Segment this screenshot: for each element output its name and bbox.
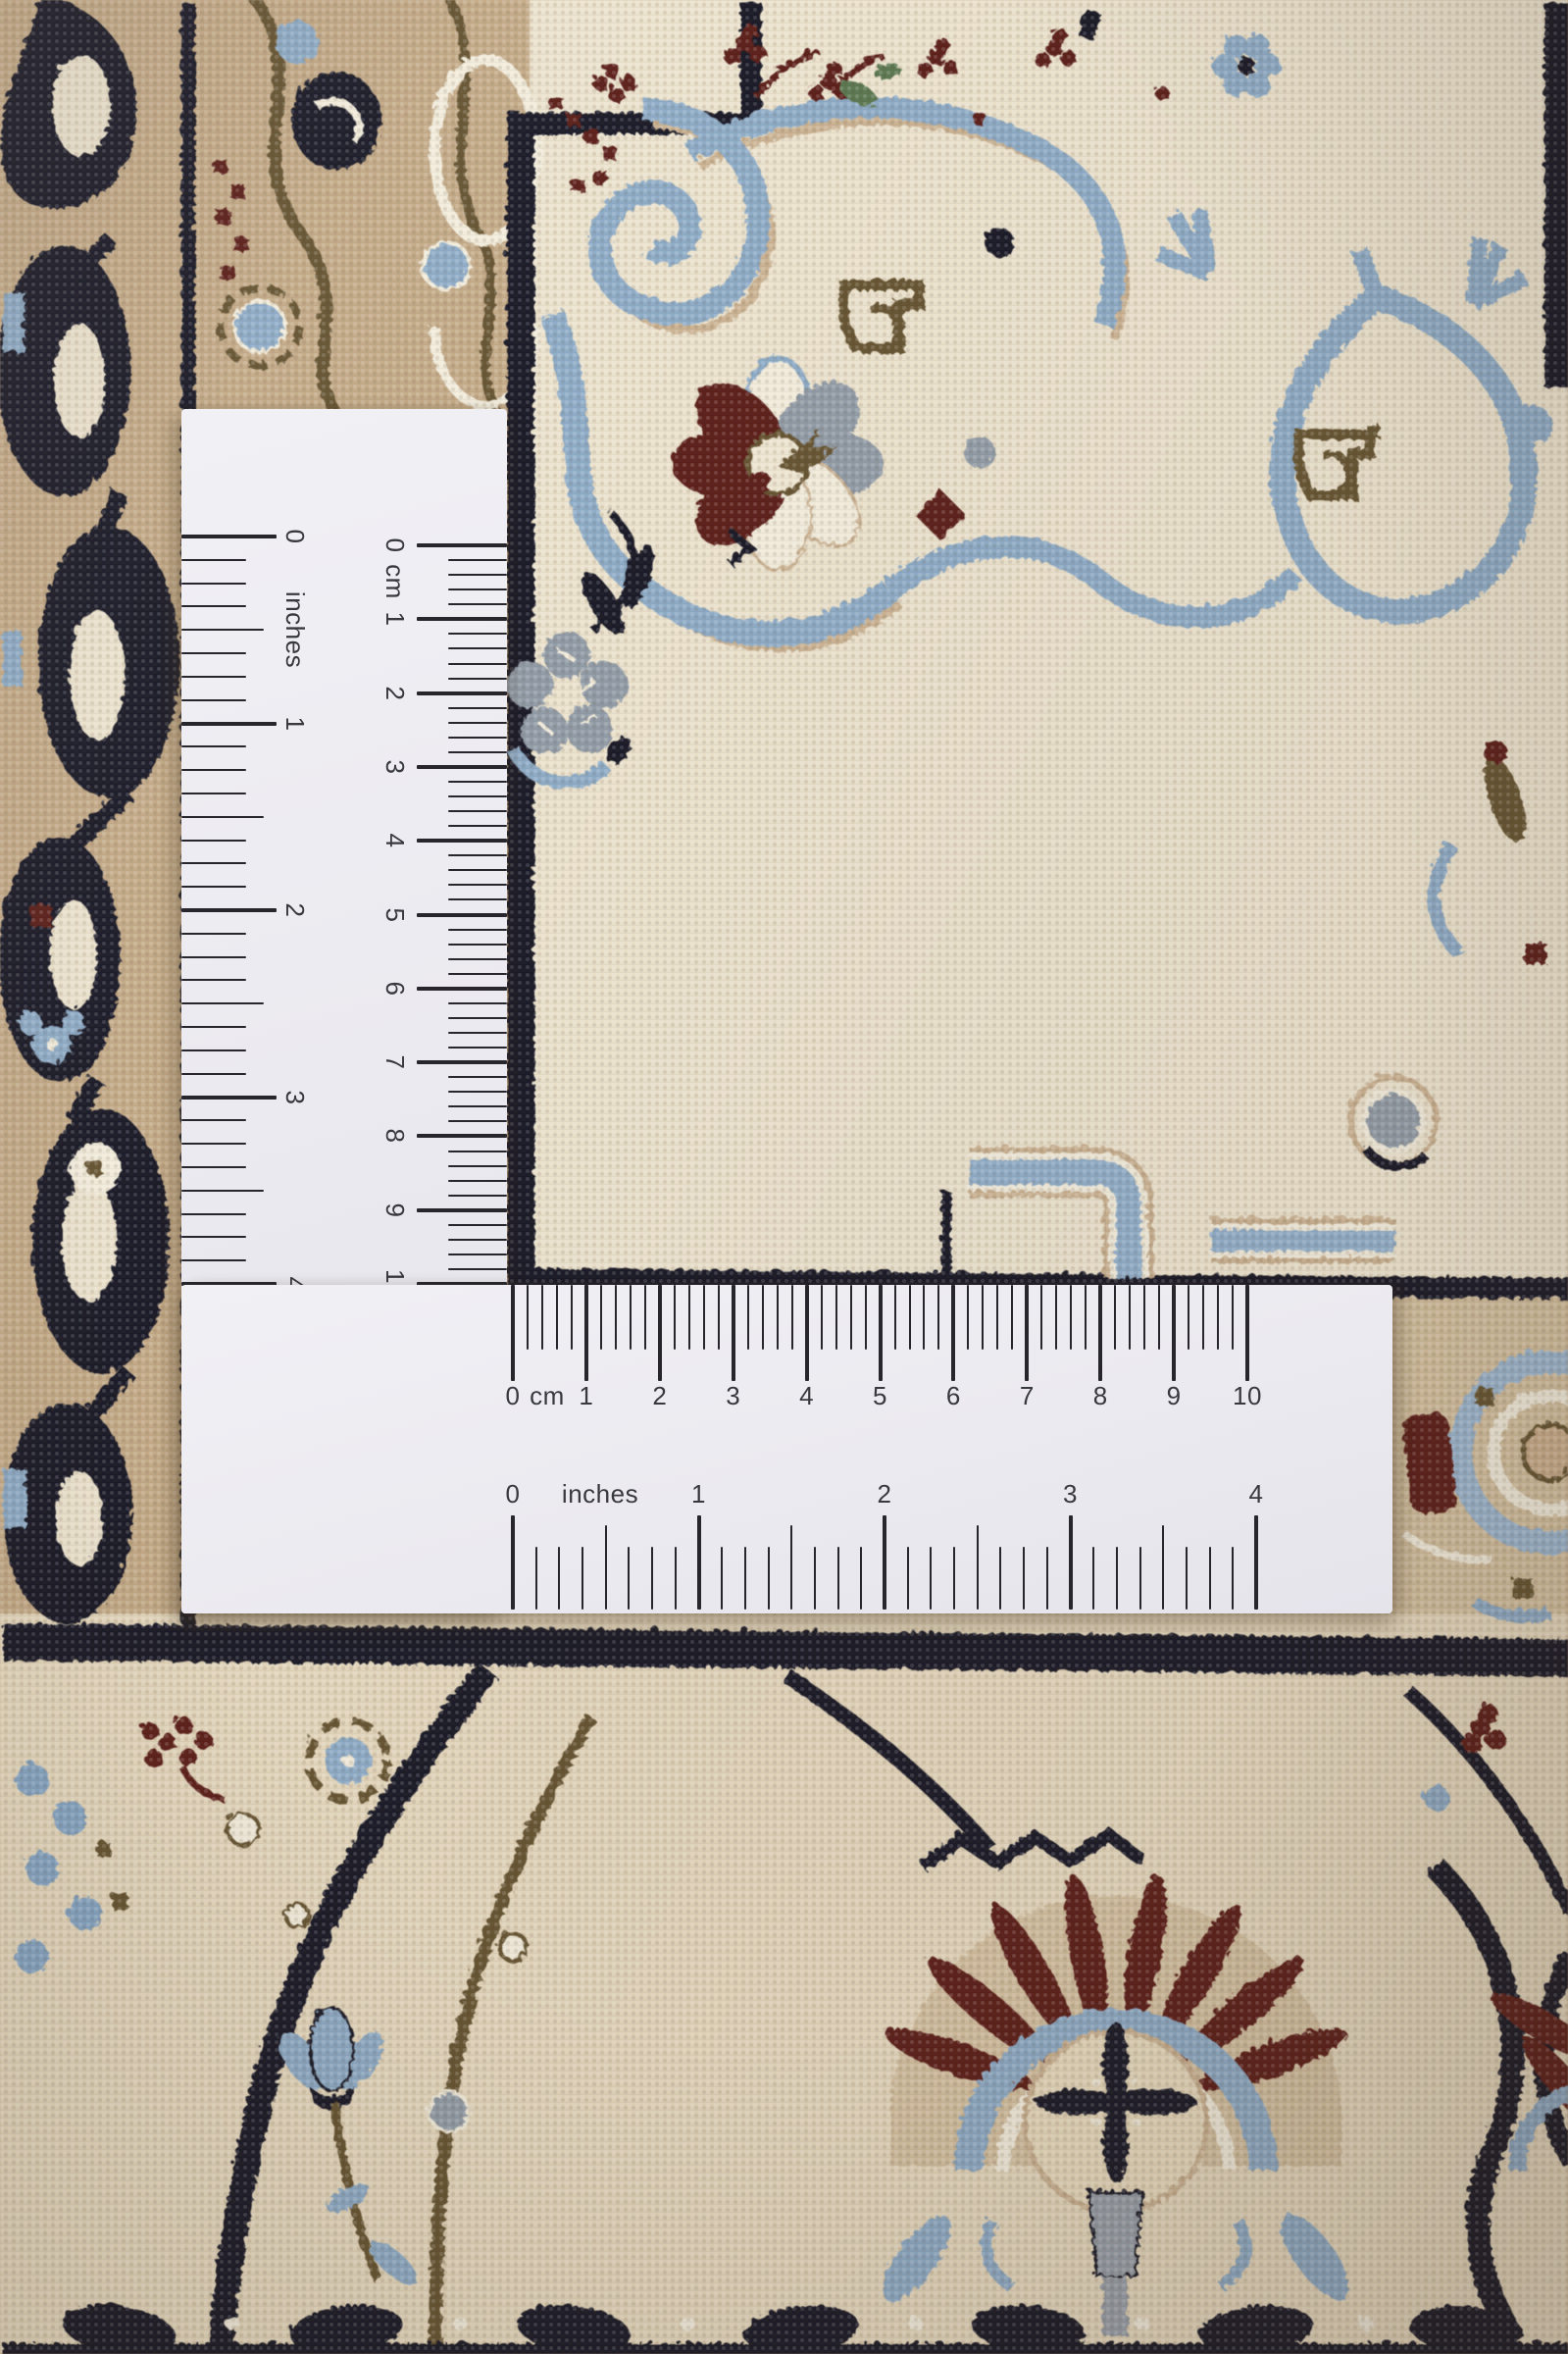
- ruler-number: 1: [691, 1481, 706, 1507]
- ruler-tick-minor: [448, 1224, 507, 1226]
- ruler-tick-minor: [1186, 1547, 1188, 1610]
- ruler-tick-minor: [448, 1180, 507, 1182]
- ruler-number: 0: [382, 538, 408, 553]
- ruler-number: 2: [382, 686, 408, 700]
- ruler-tick-major: [417, 987, 507, 991]
- ruler-tick-minor: [448, 854, 507, 856]
- ruler-horizontal-inches-scale: 01234inches: [181, 1285, 1392, 1613]
- ruler-tick-minor: [448, 707, 507, 709]
- ruler-tick-minor: [768, 1547, 770, 1610]
- ruler-tick-minor: [744, 1547, 746, 1610]
- ruler-tick-minor: [448, 1105, 507, 1107]
- ruler-number: 1: [382, 612, 408, 627]
- ruler-tick-major: [417, 913, 507, 917]
- ruler-tick-major: [697, 1515, 701, 1610]
- ruler-tick-minor: [1023, 1547, 1025, 1610]
- ruler-tick-minor: [977, 1525, 979, 1610]
- ruler-tick-minor: [448, 603, 507, 605]
- ruler-tick-major: [417, 1208, 507, 1212]
- ruler-number: 3: [1063, 1481, 1078, 1507]
- ruler-tick-minor: [448, 663, 507, 665]
- ruler-tick-minor: [651, 1547, 653, 1610]
- ruler-tick-minor: [448, 898, 507, 900]
- ruler-tick-major: [1254, 1515, 1258, 1610]
- ruler-tick-minor: [448, 1254, 507, 1255]
- ruler-tick-minor: [1092, 1547, 1094, 1610]
- ruler-tick-minor: [448, 1076, 507, 1078]
- ruler-tick-minor: [448, 944, 507, 946]
- ruler-tick-minor: [675, 1547, 677, 1610]
- ruler-tick-minor: [448, 1195, 507, 1197]
- ruler-tick-minor: [907, 1547, 909, 1610]
- ruler-tick-minor: [790, 1525, 792, 1610]
- ruler-number: 0: [506, 1481, 521, 1507]
- ruler-tick-minor: [448, 1239, 507, 1241]
- ruler-number: 4: [1249, 1481, 1264, 1507]
- ruler-tick-minor: [448, 574, 507, 576]
- ruler-tick-minor: [1046, 1547, 1048, 1610]
- ruler-tick-minor: [605, 1525, 607, 1610]
- ruler-tick-minor: [448, 559, 507, 561]
- ruler-tick-minor: [448, 722, 507, 724]
- ruler-tick-minor: [999, 1547, 1001, 1610]
- ruler-tick-minor: [448, 810, 507, 812]
- ruler-tick-minor: [1162, 1525, 1164, 1610]
- ruler-tick-minor: [628, 1547, 630, 1610]
- ruler-tick-minor: [558, 1547, 560, 1610]
- ruler-number: 7: [382, 1055, 408, 1070]
- ruler-number: 3: [382, 759, 408, 774]
- photo-stage: 01234inches 012345678910cm 012345678910c…: [0, 0, 1568, 2354]
- ruler-unit-label: cm: [382, 564, 408, 599]
- ruler-tick-minor: [953, 1547, 955, 1610]
- ruler-tick-minor: [448, 781, 507, 783]
- ruler-tick-minor: [448, 1032, 507, 1034]
- ruler-horizontal-arm: 012345678910cm 01234inches: [181, 1285, 1392, 1613]
- ruler-tick-minor: [1209, 1547, 1211, 1610]
- ruler-number: 8: [382, 1129, 408, 1144]
- ruler-tick-minor: [448, 795, 507, 797]
- ruler-tick-minor: [448, 1268, 507, 1270]
- ruler-number: 9: [382, 1203, 408, 1217]
- ruler-tick-minor: [448, 647, 507, 649]
- ruler-tick-major: [417, 691, 507, 695]
- ruler-tick-minor: [448, 1002, 507, 1004]
- ruler-tick-minor: [448, 973, 507, 975]
- ruler-tick-major: [417, 765, 507, 769]
- ruler-tick-minor: [448, 1017, 507, 1019]
- ruler-tick-minor: [448, 825, 507, 827]
- ruler-tick-minor: [448, 751, 507, 753]
- ruler-unit-label: inches: [562, 1481, 638, 1507]
- ruler-tick-minor: [837, 1547, 839, 1610]
- ruler-number: 6: [382, 981, 408, 996]
- ruler-tick-minor: [448, 884, 507, 886]
- ruler-tick-minor: [814, 1547, 816, 1610]
- ruler-tick-minor: [448, 869, 507, 871]
- ruler-number: 5: [382, 907, 408, 922]
- ruler-tick-major: [417, 1134, 507, 1138]
- ruler-tick-minor: [448, 588, 507, 590]
- ruler-tick-minor: [448, 1047, 507, 1049]
- ruler-tick-minor: [721, 1547, 723, 1610]
- ruler-tick-minor: [448, 1165, 507, 1167]
- ruler-tick-minor: [860, 1547, 862, 1610]
- ruler-tick-major: [417, 1060, 507, 1064]
- ruler-tick-major: [883, 1515, 886, 1610]
- ruler-number: 2: [878, 1481, 892, 1507]
- ruler-tick-minor: [1139, 1547, 1141, 1610]
- ruler-tick-major: [417, 617, 507, 621]
- ruler-tick-minor: [1232, 1547, 1234, 1610]
- ruler-tick-minor: [535, 1547, 537, 1610]
- ruler-tick-minor: [930, 1547, 932, 1610]
- ruler-tick-minor: [582, 1547, 583, 1610]
- ruler-tick-minor: [448, 1120, 507, 1122]
- ruler-tick-minor: [448, 958, 507, 960]
- ruler-tick-minor: [448, 633, 507, 635]
- ruler-tick-minor: [448, 678, 507, 680]
- ruler-tick-minor: [448, 929, 507, 931]
- ruler-number: 4: [382, 834, 408, 848]
- ruler-tick-minor: [448, 1151, 507, 1152]
- ruler-tick-minor: [448, 1091, 507, 1093]
- ruler-tick-minor: [448, 737, 507, 739]
- ruler-tick-major: [1069, 1515, 1073, 1610]
- ruler-tick-major: [417, 839, 507, 843]
- ruler-tick-major: [511, 1515, 515, 1610]
- ruler-tick-major: [417, 543, 507, 547]
- ruler-tick-minor: [1116, 1547, 1118, 1610]
